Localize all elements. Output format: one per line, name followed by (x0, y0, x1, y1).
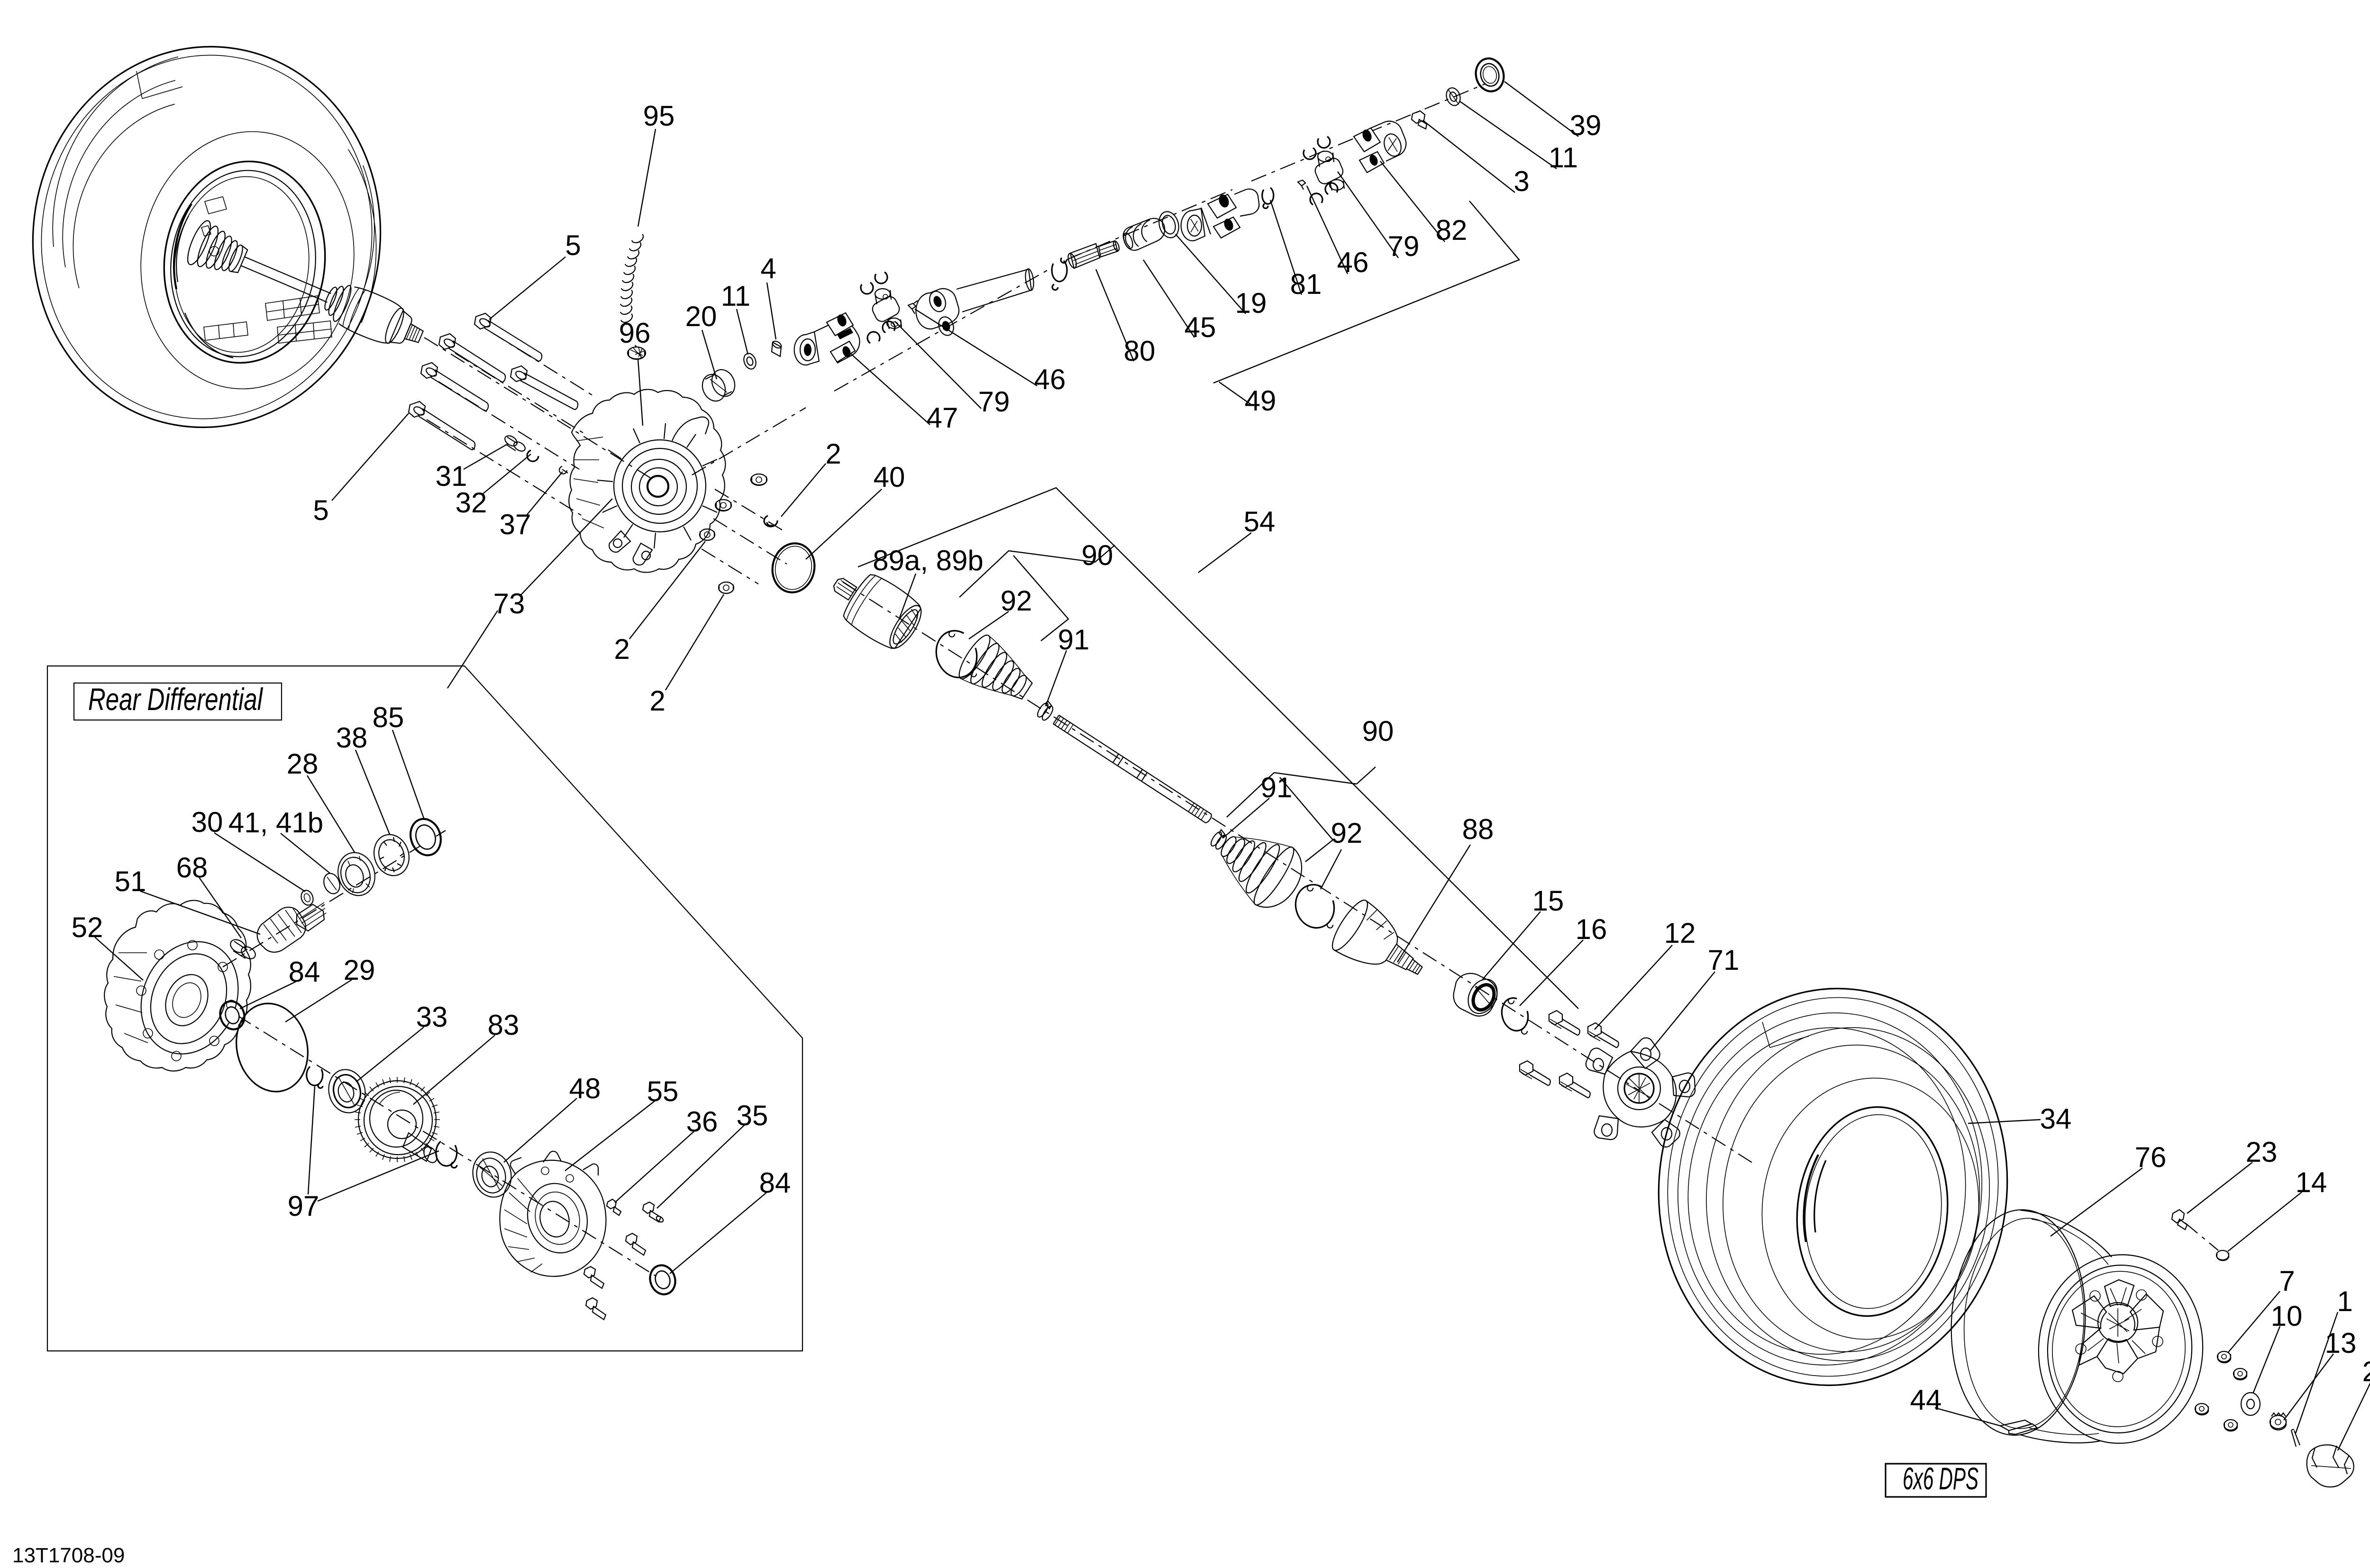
svg-text:38: 38 (336, 722, 368, 754)
svg-text:90: 90 (1362, 715, 1394, 747)
svg-text:34: 34 (2040, 1103, 2072, 1135)
svg-text:79: 79 (978, 386, 1010, 418)
svg-text:95: 95 (643, 100, 675, 132)
svg-text:81: 81 (1290, 268, 1322, 300)
svg-text:92: 92 (1001, 585, 1032, 617)
svg-text:12: 12 (1664, 917, 1696, 949)
svg-text:35: 35 (737, 1100, 768, 1131)
svg-text:83: 83 (488, 1009, 520, 1041)
svg-text:21: 21 (2362, 1356, 2370, 1387)
svg-text:13: 13 (2325, 1327, 2357, 1359)
svg-text:84: 84 (289, 956, 320, 988)
svg-text:68: 68 (176, 852, 208, 884)
svg-text:73: 73 (493, 588, 525, 620)
svg-text:10: 10 (2271, 1300, 2303, 1332)
svg-text:82: 82 (1436, 214, 1468, 246)
svg-text:1: 1 (2337, 1285, 2352, 1317)
svg-text:11: 11 (721, 280, 750, 312)
svg-text:88: 88 (1462, 813, 1494, 845)
svg-text:23: 23 (2246, 1136, 2278, 1168)
svg-text:5: 5 (313, 494, 328, 526)
svg-text:46: 46 (1034, 364, 1066, 395)
svg-text:2: 2 (825, 438, 841, 470)
svg-text:91: 91 (1261, 772, 1293, 803)
svg-text:49: 49 (1245, 385, 1276, 417)
svg-text:54: 54 (1244, 506, 1276, 538)
svg-text:19: 19 (1235, 287, 1267, 319)
svg-text:96: 96 (619, 317, 651, 349)
svg-text:79: 79 (1388, 230, 1420, 262)
svg-text:11: 11 (1549, 142, 1578, 173)
svg-text:33: 33 (416, 1001, 448, 1033)
svg-text:40: 40 (874, 461, 905, 493)
svg-text:2: 2 (649, 685, 665, 717)
svg-text:46: 46 (1337, 246, 1369, 278)
svg-text:7: 7 (2279, 1265, 2295, 1297)
svg-text:28: 28 (287, 748, 319, 780)
svg-text:89a, 89b: 89a, 89b (873, 545, 984, 576)
svg-text:47: 47 (927, 402, 958, 434)
svg-text:48: 48 (569, 1073, 601, 1104)
svg-text:41, 41b: 41, 41b (228, 807, 323, 839)
svg-text:Rear Differential: Rear Differential (88, 682, 264, 717)
svg-text:37: 37 (500, 509, 531, 540)
svg-text:84: 84 (759, 1167, 791, 1199)
svg-text:32: 32 (456, 487, 487, 519)
svg-text:76: 76 (2135, 1141, 2167, 1173)
svg-text:92: 92 (1331, 817, 1363, 849)
svg-text:80: 80 (1124, 335, 1156, 367)
svg-text:29: 29 (344, 954, 375, 986)
svg-text:6x6 DPS: 6x6 DPS (1903, 1461, 1978, 1496)
svg-text:16: 16 (1576, 913, 1607, 945)
svg-text:44: 44 (1910, 1384, 1942, 1416)
svg-text:3: 3 (1513, 165, 1529, 197)
svg-text:14: 14 (2296, 1167, 2327, 1198)
svg-text:4: 4 (760, 253, 776, 284)
svg-text:39: 39 (1570, 109, 1602, 141)
svg-text:36: 36 (686, 1106, 718, 1138)
svg-text:52: 52 (72, 912, 103, 943)
svg-text:2: 2 (614, 633, 629, 665)
svg-text:30: 30 (191, 806, 223, 838)
svg-text:71: 71 (1708, 944, 1740, 976)
svg-text:20: 20 (685, 301, 717, 332)
svg-text:13T1708-09: 13T1708-09 (12, 1544, 125, 1567)
svg-text:45: 45 (1185, 311, 1216, 343)
svg-text:91: 91 (1058, 624, 1090, 656)
svg-text:97: 97 (288, 1190, 319, 1222)
svg-text:55: 55 (647, 1076, 679, 1107)
svg-text:85: 85 (373, 702, 404, 733)
svg-text:5: 5 (565, 229, 581, 261)
svg-text:51: 51 (115, 866, 146, 897)
svg-text:15: 15 (1532, 885, 1564, 917)
svg-text:90: 90 (1082, 539, 1113, 571)
